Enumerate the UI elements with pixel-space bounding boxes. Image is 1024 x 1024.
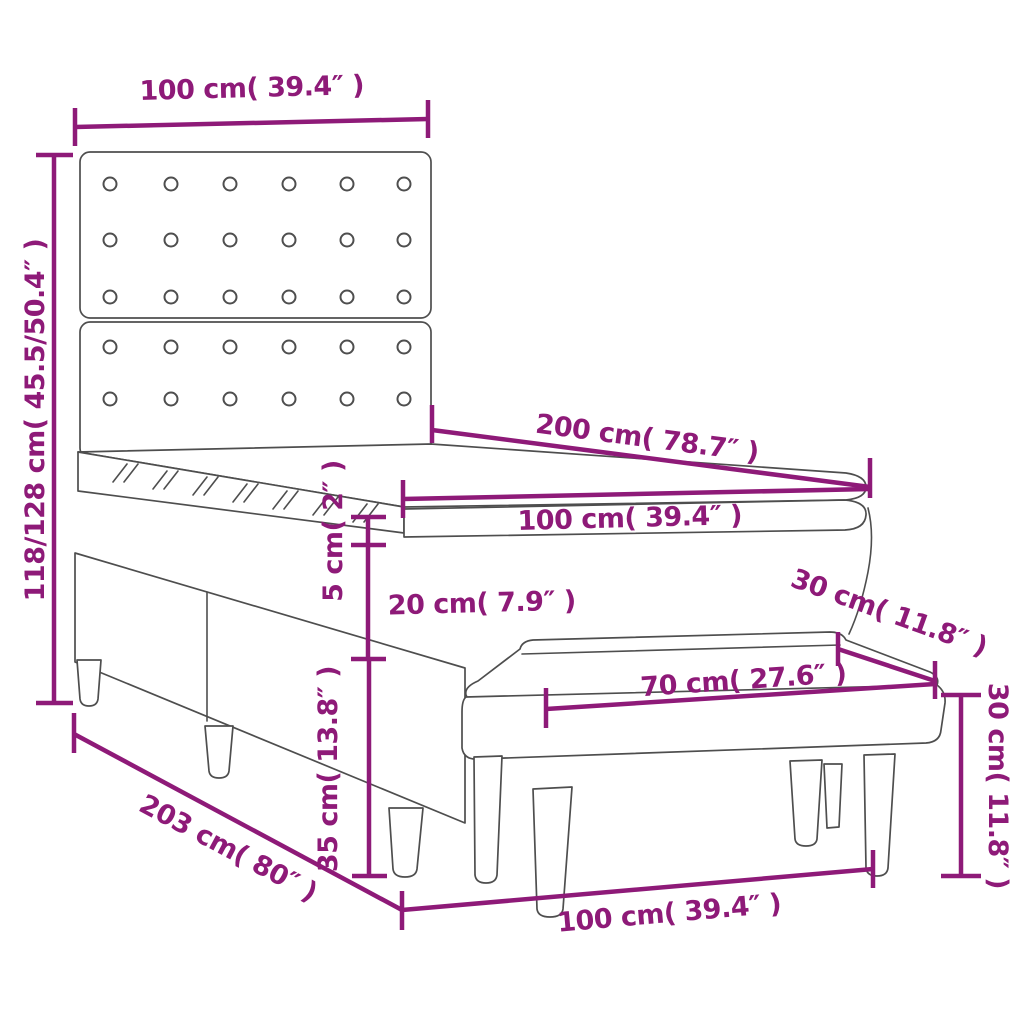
diagram-canvas: 100 cm( 39.4″ ) 118/128 cm( 45.5/50.4″ )… bbox=[0, 0, 1024, 1024]
bed-leg-left bbox=[77, 660, 101, 706]
dim-bench-height: 30 cm( 11.8″ ) bbox=[941, 683, 1013, 889]
bench-leg-front-left bbox=[474, 756, 502, 883]
base-height-label: 35 cm( 13.8″ ) bbox=[313, 666, 344, 872]
dim-bench-overall-length: 100 cm( 39.4″ ) bbox=[402, 850, 873, 939]
dim-overall-height: 118/128 cm( 45.5/50.4″ ) bbox=[20, 155, 73, 703]
headboard-width-label: 100 cm( 39.4″ ) bbox=[139, 70, 364, 107]
headboard-upper-panel bbox=[80, 152, 431, 318]
mattress-height-label: 20 cm( 7.9″ ) bbox=[387, 586, 576, 622]
topper-height-label: 5 cm( 2″ ) bbox=[318, 460, 349, 602]
bench-leg-front-right bbox=[864, 754, 895, 876]
headboard-lower-panel bbox=[80, 322, 431, 458]
headboard bbox=[80, 152, 431, 458]
bench-height-label: 30 cm( 11.8″ ) bbox=[982, 683, 1013, 889]
bed-leg-middle bbox=[205, 726, 233, 778]
bench-leg-back-right bbox=[824, 764, 842, 828]
bed-leg-right bbox=[389, 808, 423, 877]
bench-leg-back-left bbox=[790, 760, 822, 846]
mattress-width-label: 100 cm( 39.4″ ) bbox=[517, 500, 742, 537]
dimension-line bbox=[75, 119, 428, 127]
dim-headboard-width: 100 cm( 39.4″ ) bbox=[75, 70, 428, 146]
overall-height-label: 118/128 cm( 45.5/50.4″ ) bbox=[20, 239, 51, 602]
frame-length-label: 203 cm( 80″ ) bbox=[134, 789, 322, 909]
bed-dimension-diagram: 100 cm( 39.4″ ) 118/128 cm( 45.5/50.4″ )… bbox=[0, 0, 1024, 1024]
